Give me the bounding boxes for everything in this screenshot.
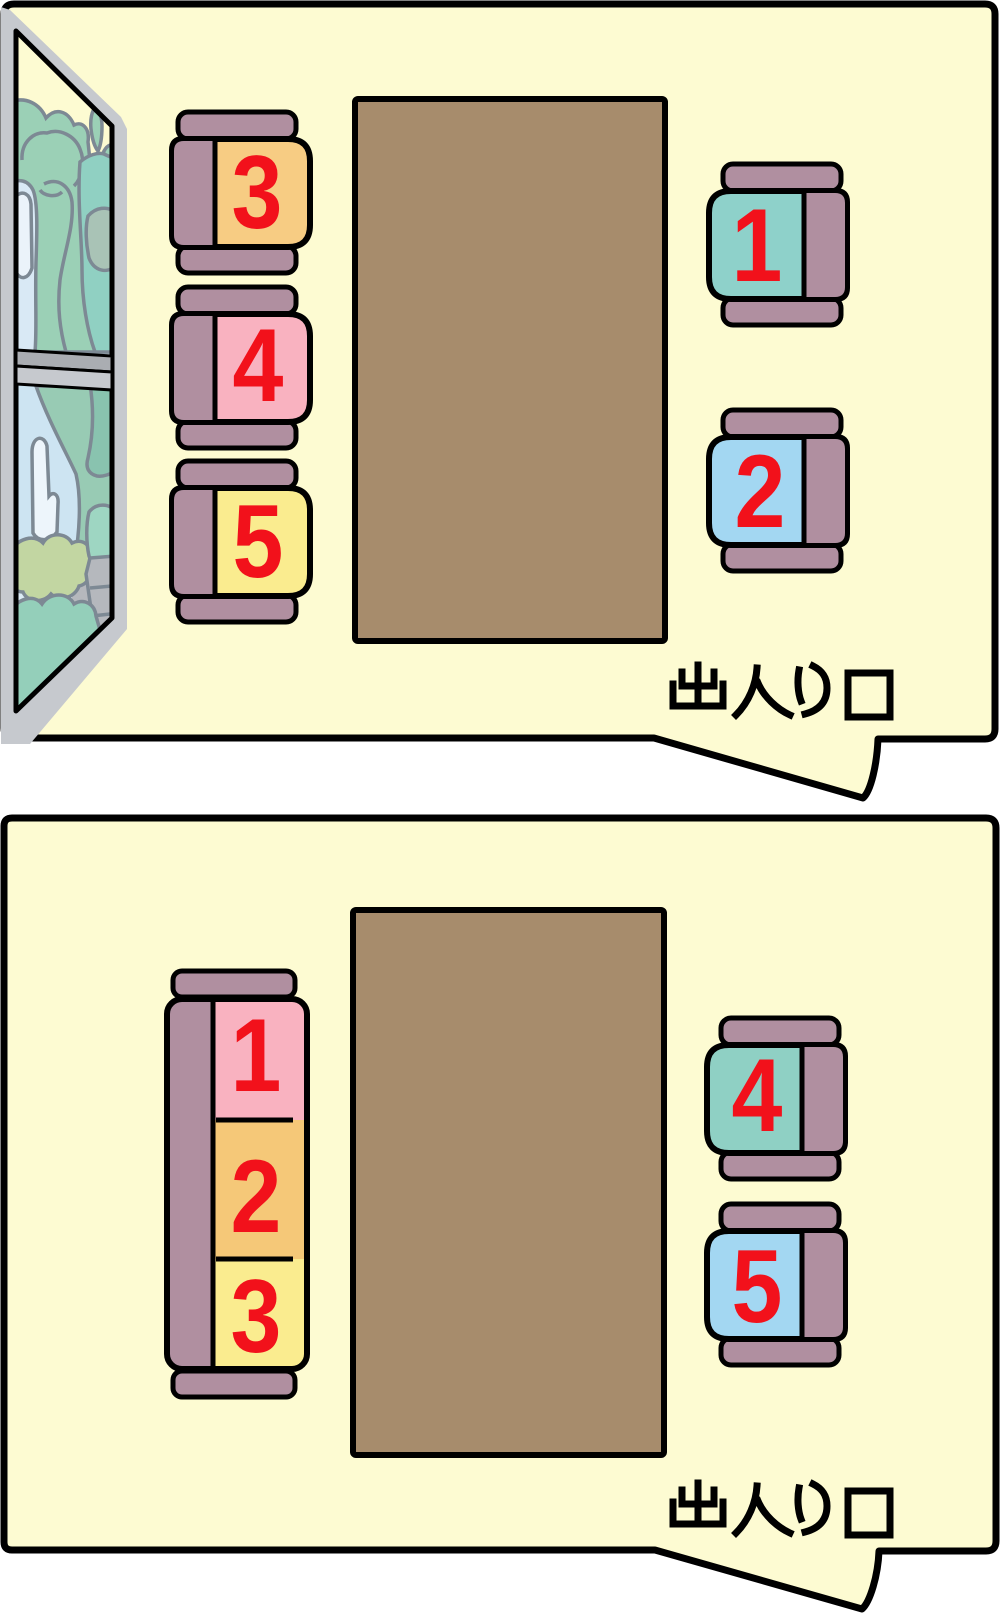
svg-text:2: 2 xyxy=(735,433,786,550)
svg-text:4: 4 xyxy=(233,307,284,424)
svg-text:4: 4 xyxy=(732,1037,783,1154)
svg-text:2: 2 xyxy=(231,1138,282,1255)
svg-text:3: 3 xyxy=(232,134,283,251)
svg-text:3: 3 xyxy=(231,1258,282,1375)
svg-text:5: 5 xyxy=(233,483,284,600)
svg-text:1: 1 xyxy=(732,187,783,304)
svg-text:5: 5 xyxy=(732,1228,783,1345)
svg-text:1: 1 xyxy=(231,997,282,1114)
